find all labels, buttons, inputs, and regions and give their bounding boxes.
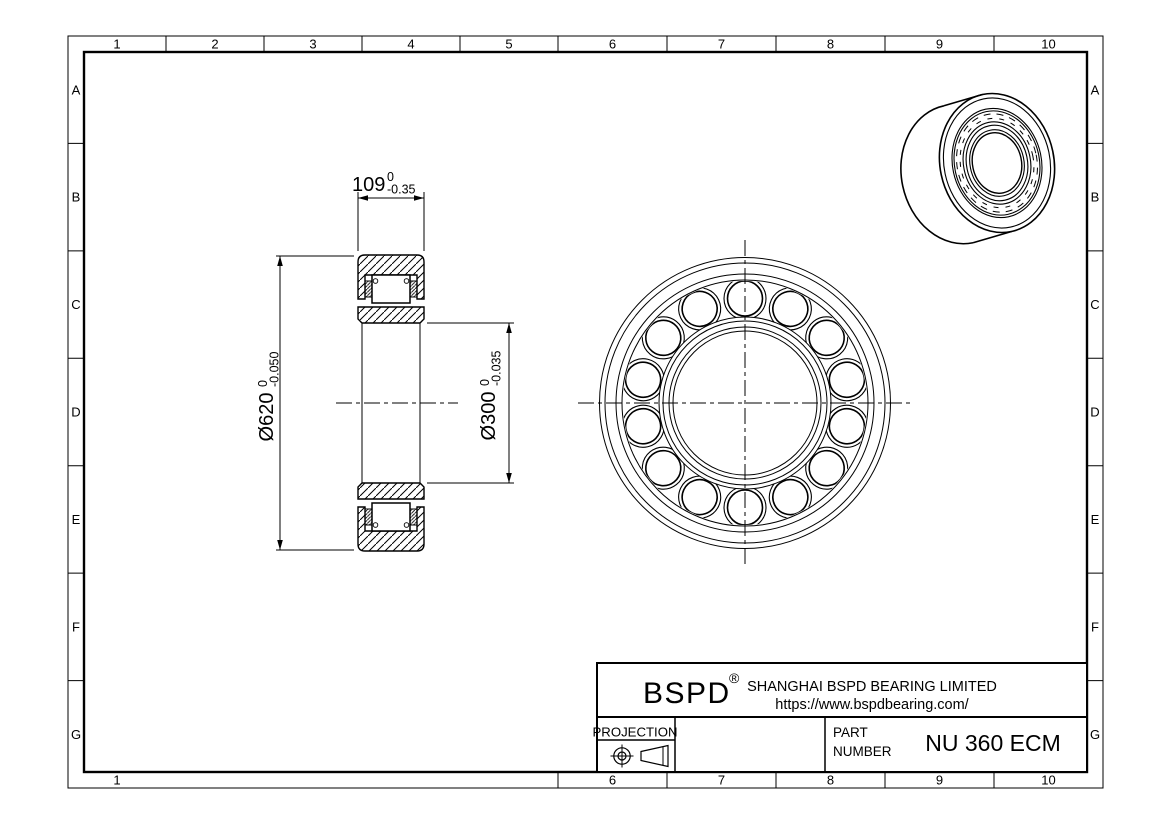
drawing-sheet: 1 2 3 4 5 6 7 8 9 10 1 6 7 8 9 10 A B C …: [0, 0, 1169, 826]
grid-col-label: 3: [309, 37, 316, 52]
grid-ref-bottom: 1 6 7 8 9 10: [113, 773, 1055, 788]
grid-row-label: E: [72, 512, 81, 527]
grid-col-label: 5: [505, 37, 512, 52]
section-view: [336, 255, 458, 551]
grid-row-label: F: [72, 620, 80, 635]
grid-ref-top: 1 2 3 4 5 6 7 8 9 10: [113, 37, 1055, 52]
grid-row-label: C: [1090, 297, 1099, 312]
dimension-width: 109 0 -0.35: [352, 170, 424, 251]
grid-row-label: A: [72, 82, 81, 97]
grid-row-label: F: [1091, 620, 1099, 635]
dimension-width-tol-lower: -0.35: [387, 183, 416, 197]
grid-row-label: A: [1091, 82, 1100, 97]
registered-mark: ®: [729, 670, 740, 686]
arrowhead-icon: [358, 195, 368, 201]
engineering-drawing-canvas: 1 2 3 4 5 6 7 8 9 10 1 6 7 8 9 10 A B C …: [0, 0, 1169, 826]
grid-col-label: 7: [718, 37, 725, 52]
isometric-view: [888, 83, 1068, 255]
grid-col-label: 10: [1041, 773, 1055, 788]
roller-section-bottom: [372, 503, 410, 531]
cylinder-tangents: [943, 95, 1012, 243]
arrowhead-icon: [277, 540, 283, 550]
grid-ref-right: A B C D E F G: [1090, 82, 1100, 742]
grid-col-label: 10: [1041, 37, 1055, 52]
grid-col-label: 8: [827, 37, 834, 52]
grid-row-label: B: [72, 190, 81, 205]
grid-row-label: G: [1090, 727, 1100, 742]
grid-col-label: 4: [407, 37, 414, 52]
part-number-label-line1: PART: [833, 725, 868, 740]
projection-label: PROJECTION: [593, 725, 678, 740]
grid-col-label: 8: [827, 773, 834, 788]
arrowhead-icon: [506, 473, 512, 483]
grid-col-label: 9: [936, 773, 943, 788]
grid-col-label: 2: [211, 37, 218, 52]
arrowhead-icon: [277, 256, 283, 266]
dimension-od-value: Ø620: [256, 393, 278, 442]
grid-col-label: 1: [113, 773, 120, 788]
website-url: https://www.bspdbearing.com/: [775, 697, 969, 713]
arrowhead-icon: [414, 195, 424, 201]
grid-col-label: 6: [609, 37, 616, 52]
arrowhead-icon: [506, 323, 512, 333]
dimension-od-tol-lower: -0.050: [268, 352, 282, 387]
front-od-ellipse: [927, 83, 1068, 244]
dimension-width-value: 109: [352, 174, 385, 196]
grid-row-label: B: [1091, 190, 1100, 205]
grid-col-label: 1: [113, 37, 120, 52]
dimension-bore-value: Ø300: [478, 392, 500, 441]
company-name: SHANGHAI BSPD BEARING LIMITED: [747, 679, 997, 695]
part-number-value: NU 360 ECM: [925, 730, 1060, 756]
inner-ring-section-top: [358, 307, 424, 323]
roller-hints-outer: [948, 106, 1047, 219]
grid-ref-left: A B C D E F G: [71, 82, 81, 742]
brand-text: BSPD: [643, 677, 731, 710]
grid-col-label: 9: [936, 37, 943, 52]
title-block: BSPD ® SHANGHAI BSPD BEARING LIMITED htt…: [593, 663, 1088, 772]
grid-col-label: 6: [609, 773, 616, 788]
grid-row-label: G: [71, 727, 81, 742]
grid-ticks-top: [166, 36, 994, 52]
grid-row-label: E: [1091, 512, 1100, 527]
front-view: [578, 240, 913, 566]
grid-row-label: C: [71, 297, 80, 312]
inner-ring-section-bottom: [358, 483, 424, 499]
grid-col-label: 7: [718, 773, 725, 788]
grid-ticks-bottom: [558, 772, 994, 788]
extension-lines: [358, 192, 424, 251]
roller-section-top: [372, 275, 410, 303]
grid-row-label: D: [71, 405, 80, 420]
dimension-bore-tol-lower: -0.035: [490, 351, 504, 386]
grid-row-label: D: [1090, 405, 1099, 420]
part-number-label-line2: NUMBER: [833, 744, 892, 759]
